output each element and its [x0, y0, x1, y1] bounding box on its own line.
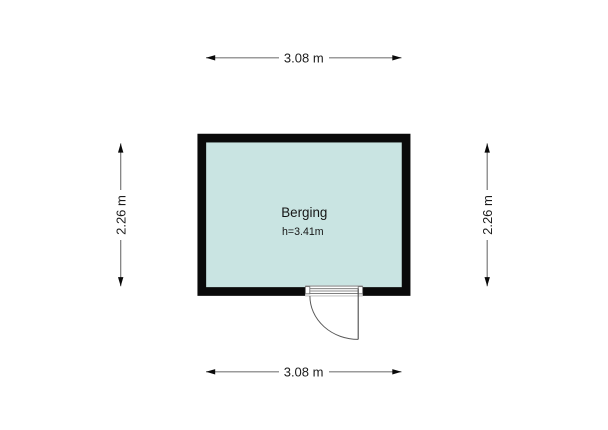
svg-text:3.08 m: 3.08 m	[284, 364, 324, 379]
svg-text:3.08 m: 3.08 m	[284, 50, 324, 65]
svg-text:h=3.41m: h=3.41m	[282, 226, 324, 238]
svg-text:2.26 m: 2.26 m	[113, 195, 128, 235]
svg-text:2.26 m: 2.26 m	[480, 195, 495, 235]
svg-text:Berging: Berging	[281, 205, 327, 220]
